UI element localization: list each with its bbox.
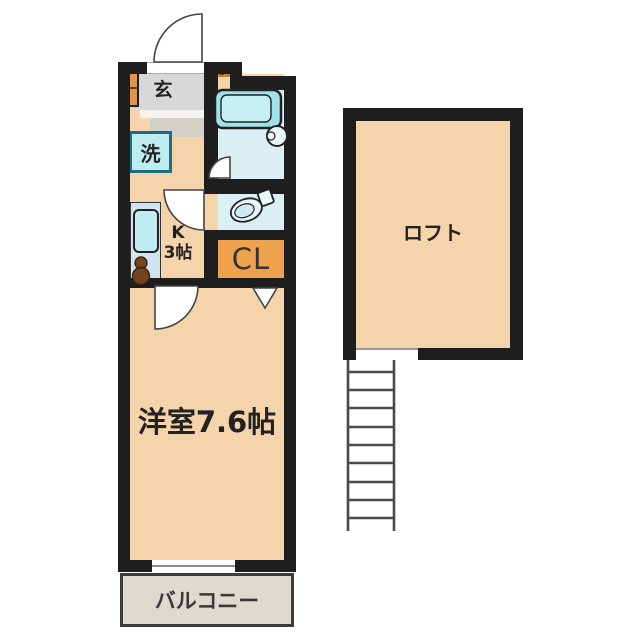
kitchen-label-line1: K [171,223,184,243]
loft-ladder-icon [348,360,394,531]
wall-kitchen-mainroom [118,278,210,288]
washer-label: 洗 [129,133,172,171]
fixtures-overlay [0,0,640,640]
entrance-door-swing-icon [154,14,202,62]
balcony-label: バルコニー [120,578,294,622]
closet-label: CL [218,240,284,278]
bathroom-area [218,90,284,179]
floor-plan: 玄 洗 K 3帖 CL 洋室7.6帖 バルコニー ロフト [0,0,640,640]
loft-ladder-opening [356,348,418,360]
entrance-opening [147,62,204,74]
balcony-window-glass-line [152,565,235,567]
genkan-step [140,110,204,118]
main-room-label: 洋室7.6帖 [130,400,284,440]
kitchen-label-line2: 3帖 [164,243,193,263]
wall-bath-toilet [204,179,296,194]
entrance-label: 玄 [144,75,182,101]
loft-label: ロフト [356,216,510,246]
wall-bath-left [204,74,218,194]
wall-right [284,76,296,572]
kitchen-label: K 3帖 [152,224,204,264]
toilet-area [218,194,284,230]
